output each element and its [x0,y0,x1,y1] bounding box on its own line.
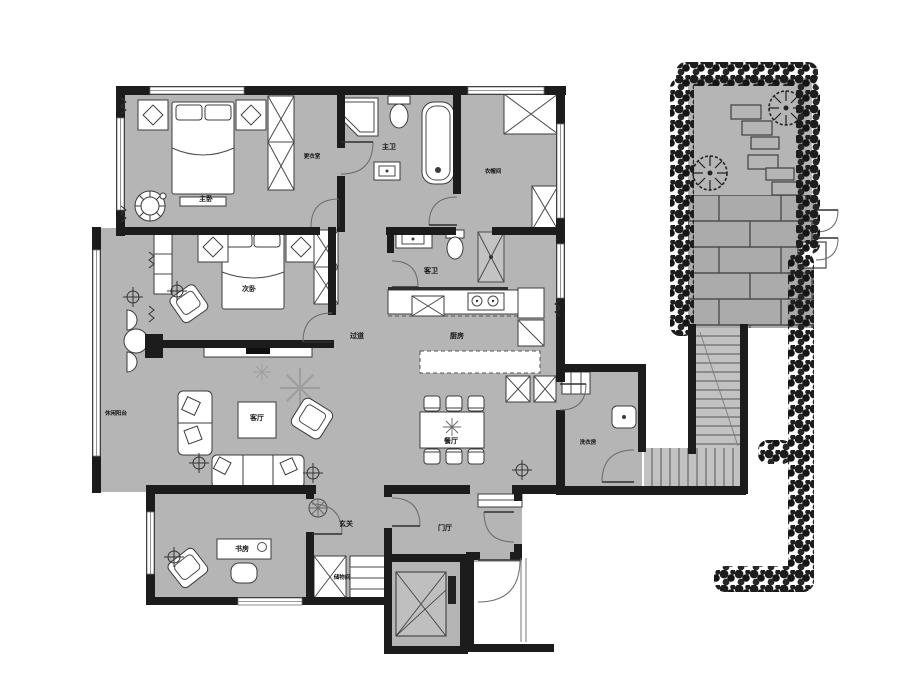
tv-icon [246,347,270,354]
room-label-dressing-room: 更衣室 [304,152,321,160]
room-label-foyer: 玄关 [339,519,353,529]
cooktop-icon [468,293,504,310]
fridge-icon [412,296,444,316]
sofa-icon [178,391,212,455]
balcony-table-icon [124,329,148,353]
room-label-entry-hall: 门厅 [438,523,452,533]
kitchen-island [420,351,540,373]
wardrobe-icon [268,96,294,190]
room-label-living-room: 客厅 [250,413,264,423]
tree-icon [693,156,727,190]
nightstand-icon [236,100,266,130]
room-label-laundry-room: 洗衣房 [580,438,597,446]
wardrobe-icon [504,94,558,134]
bathtub-icon [422,102,454,184]
elevator-panel-icon [448,576,456,604]
room-label-hallway: 过道 [350,331,364,341]
nightstand-icon [198,232,228,262]
desk-chair-icon [231,563,257,583]
kitchen-counter [388,290,540,314]
floor-plan-canvas: 主卧 更衣室 主卫 衣帽间 次卧 客卫 厨房 过道 休闲阳台 客厅 餐厅 洗衣房… [0,0,900,689]
sink-icon [612,406,636,428]
toilet-icon [388,96,410,128]
floor-plan-drawing [0,0,900,689]
shower-icon [478,232,504,282]
cabinet-icon [518,288,544,318]
appliance-icon [506,376,530,402]
shelf-icon [350,556,386,598]
room-label-second-bedroom: 次卧 [242,284,256,294]
wardrobe-icon [532,186,558,230]
sofa-icon [212,455,304,488]
dining-furniture [420,396,484,464]
room-label-storage: 储物间 [334,573,351,581]
room-label-dining-room: 餐厅 [444,436,458,446]
room-label-guest-bath: 客卫 [424,266,438,276]
appliance-icon [534,376,556,402]
room-label-master-bedroom: 主卧 [199,194,213,204]
cabinet-icon [154,234,172,294]
room-label-master-bath: 主卫 [382,142,396,152]
plant-icon [309,499,327,517]
appliance-icon [518,320,544,346]
outdoor-stairs [644,324,748,494]
nightstand-icon [286,232,316,262]
room-label-kitchen: 厨房 [450,331,464,341]
bassinet-icon [135,191,166,221]
sink-icon [374,162,400,180]
nightstand-icon [138,100,168,130]
room-label-study: 书房 [235,544,249,554]
room-label-leisure-balcony: 休闲阳台 [105,409,127,417]
room-label-cloakroom: 衣帽间 [485,167,502,175]
